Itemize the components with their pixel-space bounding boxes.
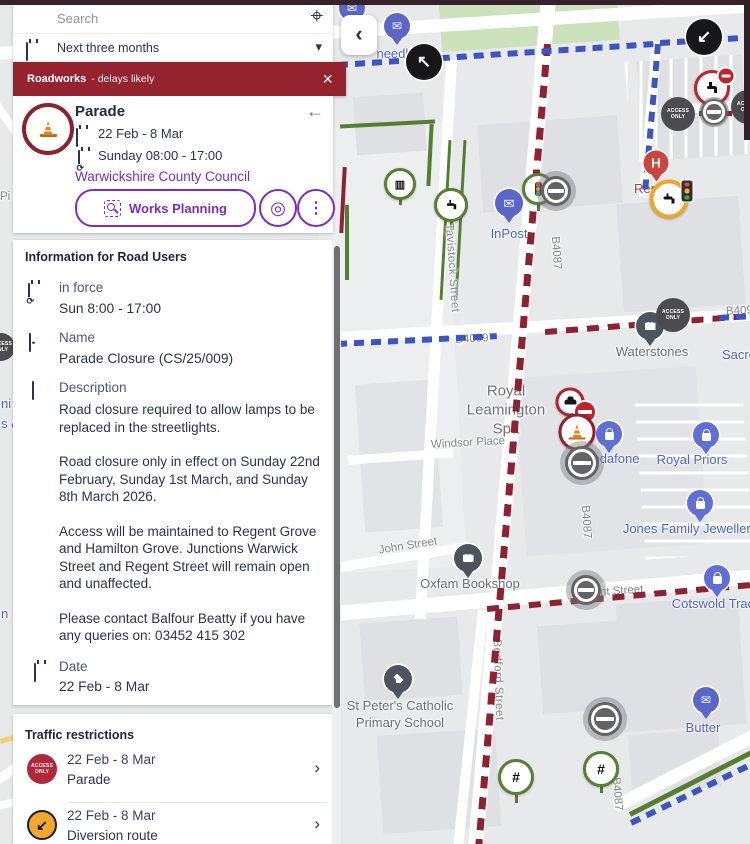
roadworks-marker-columns[interactable]: ▥ (384, 168, 416, 200)
description-paragraph: Road closure only in effect on Sunday 22… (59, 453, 329, 506)
calendar-repeat-icon: ⟳ (78, 150, 80, 169)
hash-icon: # (597, 761, 605, 777)
restriction-row-parade[interactable]: ACCESS ONLY 22 Feb - 8 Mar Parade › (13, 750, 333, 798)
document-icon (32, 381, 34, 400)
works-planning-label: Works Planning (129, 201, 227, 216)
poi-pin-butter[interactable]: ✉ (693, 687, 719, 713)
incident-card: ← Parade 22 Feb - 8 Mar ⟳ Sunday 08:00 -… (13, 96, 333, 233)
book-icon (463, 554, 474, 562)
shopping-bag-icon (713, 576, 722, 584)
restriction-date: 22 Feb - 8 Mar (67, 752, 156, 767)
banner-subtitle: - delays likely (91, 73, 154, 85)
restrictions-heading: Traffic restrictions (25, 728, 134, 742)
poi-label-cotswold: Cotswold Trading (672, 596, 750, 611)
roadworks-banner: Roadworks - delays likely × (13, 62, 346, 96)
hospital-pin[interactable]: H (644, 151, 669, 176)
chevron-right-icon: › (314, 814, 320, 834)
poi-pin-jones[interactable] (687, 490, 713, 516)
tap-icon (445, 200, 456, 210)
diversion-badge: ↙ (27, 810, 57, 840)
hash-icon: # (512, 769, 520, 785)
divider (67, 802, 327, 803)
mail-icon: ✉ (504, 197, 515, 210)
search-input[interactable]: Search (57, 11, 98, 26)
incident-authority[interactable]: Warwickshire County Council (75, 169, 250, 184)
roadworks-marker-utility[interactable] (434, 188, 468, 222)
calendar-repeat-icon: ⟳ (28, 283, 30, 302)
date-label: Date (59, 659, 88, 674)
target-icon: ◎ (270, 198, 286, 219)
scrollbar-thumb[interactable] (334, 246, 340, 708)
closure-point-marker[interactable] (588, 702, 622, 736)
tag-icon (29, 333, 31, 352)
shopping-bag-icon (696, 501, 705, 509)
collapse-left-icon: ‹ (355, 21, 362, 47)
poi-label-inpost: InPost (491, 226, 528, 241)
shopping-bag-icon (605, 432, 614, 440)
arrow-sw-icon: ↙ (36, 817, 48, 834)
window-top-edge (0, 0, 750, 5)
graduation-cap-icon (392, 674, 405, 684)
columns-icon: ▥ (395, 178, 405, 191)
calendar-icon (76, 128, 78, 147)
focus-target-button[interactable]: ◎ (259, 189, 297, 227)
poi-pin-oxfam[interactable] (454, 544, 482, 572)
restriction-date: 22 Feb - 8 Mar (67, 808, 156, 823)
building (616, 596, 747, 732)
more-options-button[interactable]: ⋮ (297, 189, 335, 227)
arrow-nw-icon: ↖ (417, 52, 431, 72)
name-value: Parade Closure (CS/25/009) (59, 351, 233, 366)
incident-date-range: 22 Feb - 8 Mar (98, 126, 183, 141)
poi-pin-cotswold[interactable] (704, 565, 730, 591)
search-row[interactable]: Search ⌖ (13, 4, 333, 33)
closure-point-marker[interactable] (565, 446, 599, 480)
hospital-letter: H (651, 157, 660, 170)
works-planning-button[interactable]: Works Planning (75, 189, 256, 227)
place-label-leamington: Royal Leamington Spa (467, 382, 545, 439)
closure-point-marker[interactable] (541, 176, 571, 206)
road-users-info-card: Information for Road Users ⟳ in force Su… (13, 240, 333, 705)
book-icon (645, 322, 656, 330)
road-label-b4087: B4087 (579, 505, 593, 539)
poi-fragment: ni (1, 396, 11, 411)
tap-icon (706, 82, 719, 94)
green-route (345, 205, 349, 280)
restriction-row-diversion[interactable]: ↙ 22 Feb - 8 Mar Diversion route › (13, 806, 333, 844)
mail-icon: ✉ (701, 694, 711, 706)
description-label: Description (59, 380, 127, 395)
tap-icon (663, 193, 676, 205)
road-label-b4087: B4087 (549, 236, 563, 270)
portable-signals-marker[interactable] (682, 181, 693, 202)
traffic-cone-icon (40, 121, 57, 137)
poi-pin-royal-priors[interactable] (693, 422, 719, 448)
diversion-arrow-marker[interactable]: ↖ (406, 44, 442, 80)
mail-icon: ✉ (392, 20, 402, 32)
roadworks-marker-grid[interactable]: # (498, 759, 534, 795)
window-right-edge (744, 0, 750, 140)
sidebar-collapse-button[interactable]: ‹ (341, 15, 377, 55)
in-force-value: Sun 8:00 - 17:00 (59, 301, 161, 316)
locate-icon[interactable]: ⌖ (311, 3, 323, 29)
date-value: 22 Feb - 8 Mar (59, 679, 149, 694)
roadworks-cone-marker[interactable] (559, 414, 596, 451)
no-entry-badge (717, 67, 736, 86)
description-paragraph: Please contact Balfour Beatty if you hav… (59, 610, 329, 645)
in-force-label: in force (59, 280, 103, 295)
poi-pin-school[interactable] (384, 665, 412, 693)
building (359, 617, 462, 702)
access-only-marker[interactable]: ACCESS ONLY (656, 298, 690, 332)
poi-pin-needle[interactable]: ✉ (384, 13, 410, 39)
poi-fragment: Pi (0, 191, 10, 203)
back-icon[interactable]: ← (306, 101, 324, 122)
traffic-restrictions-card: Traffic restrictions ACCESS ONLY 22 Feb … (13, 714, 333, 844)
date-filter-value: Next three months (57, 41, 159, 55)
traffic-cone-icon (569, 424, 586, 440)
kebab-icon: ⋮ (308, 198, 324, 218)
incident-badge (22, 103, 74, 155)
poi-pin-inpost[interactable]: ✉ (495, 189, 523, 217)
incident-schedule: Sunday 08:00 - 17:00 (98, 148, 222, 163)
name-label: Name (59, 330, 95, 345)
app-window: Tavistock Street B4087 B4087 B4087 B4099… (0, 0, 750, 844)
banner-title: Roadworks (27, 73, 86, 85)
closure-point-marker[interactable] (701, 99, 727, 125)
access-only-marker[interactable]: ACCESS ONLY (661, 97, 695, 131)
description-text: Road closure required to allow lamps to … (59, 401, 329, 645)
poi-fragment: n (1, 606, 8, 621)
roadworks-marker-grid[interactable]: # (583, 751, 619, 787)
restriction-name: Parade (67, 772, 111, 787)
chevron-down-icon: ▾ (315, 39, 322, 55)
date-filter-row[interactable]: Next three months ▾ (13, 33, 333, 63)
arrow-sw-icon: ↙ (697, 27, 711, 47)
car-icon (564, 399, 576, 405)
poi-label-sacred: Sacred (722, 347, 750, 362)
diversion-arrow-marker[interactable]: ↙ (686, 19, 722, 55)
calendar-icon (34, 663, 36, 682)
poi-pin-vodafone[interactable] (596, 421, 622, 447)
description-paragraph: Road closure required to allow lamps to … (59, 401, 329, 436)
closure-point-marker[interactable] (571, 575, 601, 605)
chevron-right-icon: › (314, 758, 320, 778)
poi-label-jones: Jones Family Jewellers (623, 521, 750, 536)
description-paragraph: Access will be maintained to Regent Grov… (59, 523, 329, 593)
incident-title: Parade (75, 103, 125, 120)
calendar-icon (26, 42, 28, 61)
restriction-name: Diversion route (67, 828, 158, 843)
search-panel: Search ⌖ Next three months ▾ (13, 4, 333, 62)
access-only-badge: ACCESS ONLY (27, 754, 57, 784)
shopping-bag-icon (702, 433, 711, 441)
poi-label-royal-priors: Royal Priors (657, 452, 728, 467)
works-scan-icon (104, 200, 121, 217)
close-icon[interactable]: × (322, 70, 333, 88)
info-heading: Information for Road Users (25, 250, 187, 264)
